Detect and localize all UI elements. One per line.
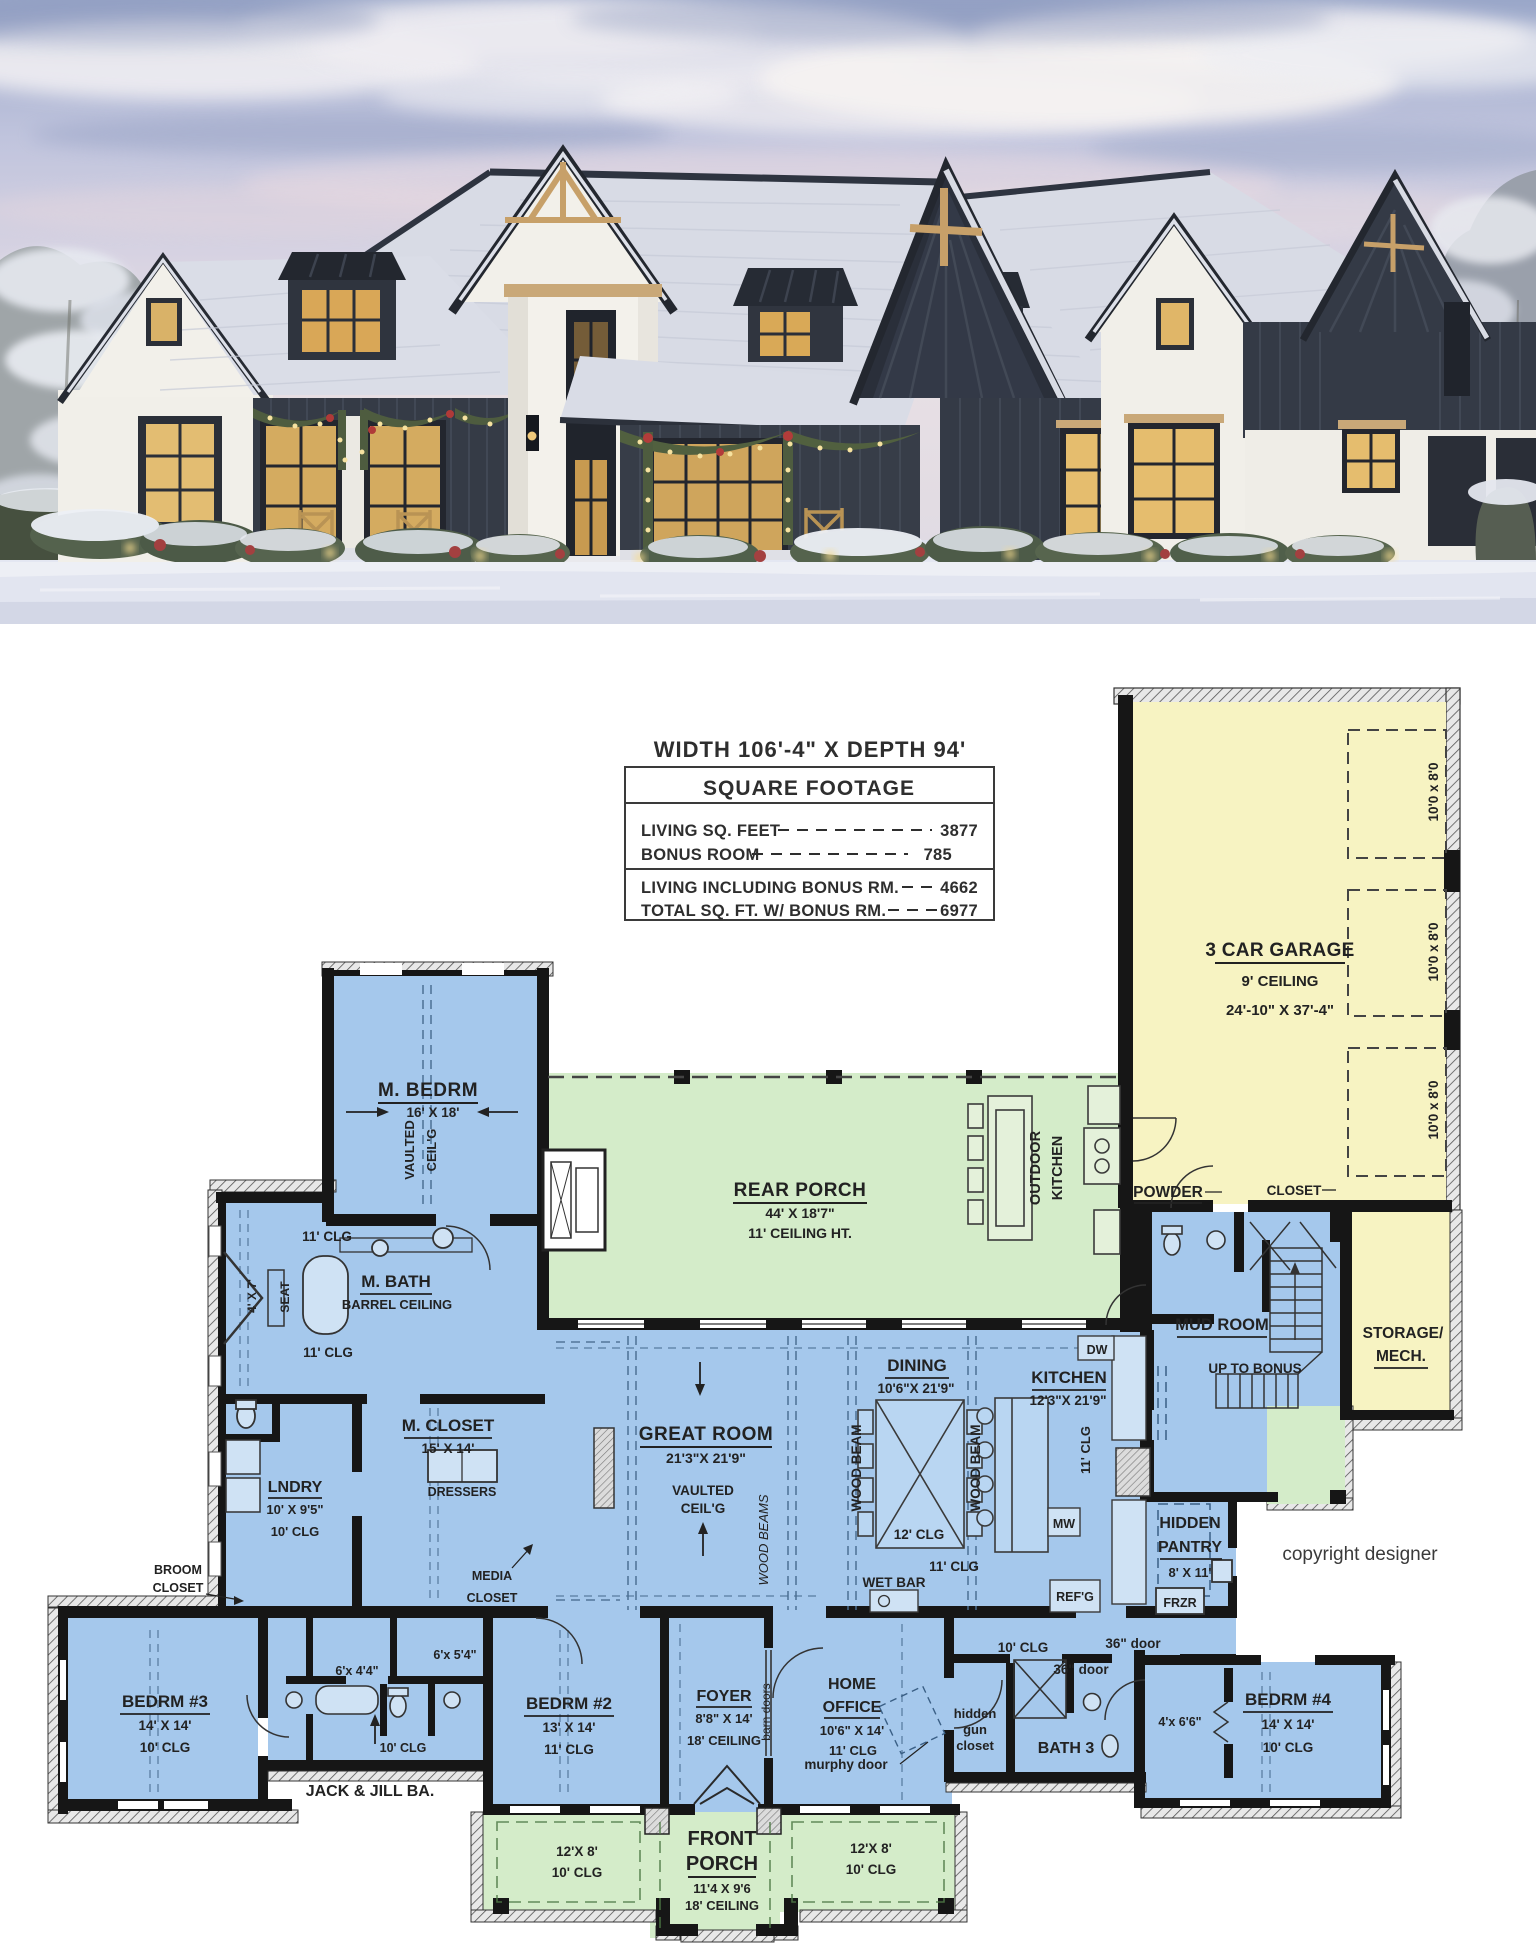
svg-text:8'8" X 14': 8'8" X 14'	[695, 1711, 752, 1726]
svg-text:FRZR: FRZR	[1163, 1596, 1196, 1610]
svg-text:11' CLG: 11' CLG	[929, 1559, 979, 1574]
svg-text:WOOD BEAMS: WOOD BEAMS	[756, 1494, 771, 1585]
svg-text:6'x 5'4": 6'x 5'4"	[433, 1648, 476, 1662]
svg-text:LIVING SQ. FEET: LIVING SQ. FEET	[641, 822, 780, 840]
svg-text:4' X 7': 4' X 7'	[245, 1279, 259, 1313]
svg-text:UP TO BONUS: UP TO BONUS	[1208, 1361, 1301, 1376]
svg-text:10'6"X 21'9": 10'6"X 21'9"	[877, 1381, 954, 1396]
svg-text:12'3"X 21'9": 12'3"X 21'9"	[1029, 1393, 1106, 1408]
svg-text:BARREL CEILING: BARREL CEILING	[342, 1297, 452, 1312]
svg-text:10'0 x 8'0: 10'0 x 8'0	[1426, 923, 1441, 982]
svg-text:11' CLG: 11' CLG	[1078, 1426, 1093, 1474]
svg-text:hidden: hidden	[954, 1706, 997, 1721]
svg-text:MEDIA: MEDIA	[472, 1569, 512, 1583]
svg-text:4'x 6'6": 4'x 6'6"	[1158, 1715, 1201, 1729]
svg-text:FRONT: FRONT	[688, 1828, 757, 1850]
svg-text:gun: gun	[963, 1722, 987, 1737]
svg-text:copyright designer: copyright designer	[1282, 1544, 1438, 1565]
svg-text:10'0 x 8'0: 10'0 x 8'0	[1426, 1081, 1441, 1140]
svg-text:14' X 14': 14' X 14'	[1262, 1717, 1315, 1732]
svg-text:DRESSERS: DRESSERS	[428, 1485, 497, 1499]
svg-text:MUD ROOM: MUD ROOM	[1175, 1316, 1269, 1334]
svg-text:36" door: 36" door	[1105, 1636, 1161, 1651]
svg-text:24'-10" X 37'-4": 24'-10" X 37'-4"	[1226, 1002, 1334, 1019]
svg-text:TOTAL SQ. FT. W/ BONUS RM.: TOTAL SQ. FT. W/ BONUS RM.	[641, 902, 886, 920]
svg-text:10' CLG: 10' CLG	[552, 1865, 602, 1880]
svg-text:12' CLG: 12' CLG	[894, 1527, 944, 1542]
svg-text:BEDRM #2: BEDRM #2	[526, 1694, 612, 1713]
svg-text:POWDER: POWDER	[1133, 1184, 1203, 1201]
svg-text:12'X 8': 12'X 8'	[850, 1841, 892, 1856]
svg-text:CEIL'G: CEIL'G	[681, 1501, 725, 1516]
svg-text:WIDTH 106'-4" X DEPTH 94': WIDTH 106'-4" X DEPTH 94'	[654, 737, 966, 762]
svg-text:SQUARE FOOTAGE: SQUARE FOOTAGE	[703, 777, 915, 800]
svg-text:M. CLOSET: M. CLOSET	[402, 1416, 495, 1435]
svg-text:9' CEILING: 9' CEILING	[1242, 973, 1319, 990]
svg-text:CLOSET: CLOSET	[467, 1591, 518, 1605]
svg-text:13' X 14': 13' X 14'	[543, 1720, 596, 1735]
svg-text:HOME: HOME	[828, 1676, 876, 1693]
svg-text:MECH.: MECH.	[1376, 1348, 1426, 1365]
svg-text:11'4 X 9'6: 11'4 X 9'6	[693, 1881, 751, 1896]
svg-text:11' CLG: 11' CLG	[544, 1742, 594, 1757]
svg-text:10'6" X 14': 10'6" X 14'	[820, 1723, 884, 1738]
svg-text:WOOD BEAM: WOOD BEAM	[968, 1425, 983, 1512]
svg-text:KITCHEN: KITCHEN	[1031, 1368, 1107, 1387]
svg-text:36" door: 36" door	[1053, 1662, 1109, 1677]
svg-text:21'3"X 21'9": 21'3"X 21'9"	[666, 1450, 746, 1466]
svg-text:MW: MW	[1053, 1517, 1075, 1531]
svg-text:8' X 11': 8' X 11'	[1168, 1565, 1211, 1580]
svg-text:6'x 4'4": 6'x 4'4"	[335, 1664, 378, 1678]
svg-text:OUTDOOR: OUTDOOR	[1028, 1130, 1044, 1205]
svg-text:11' CEILING HT.: 11' CEILING HT.	[748, 1225, 852, 1241]
svg-text:PANTRY: PANTRY	[1158, 1539, 1222, 1556]
svg-text:3 CAR GARAGE: 3 CAR GARAGE	[1205, 940, 1354, 961]
svg-text:GREAT ROOM: GREAT ROOM	[639, 1424, 773, 1445]
svg-text:VAULTED: VAULTED	[672, 1483, 734, 1498]
svg-text:WET BAR: WET BAR	[863, 1575, 926, 1590]
svg-text:LIVING INCLUDING BONUS RM.: LIVING INCLUDING BONUS RM.	[641, 879, 899, 897]
svg-text:11' CLG: 11' CLG	[303, 1345, 353, 1360]
svg-text:15' X 14': 15' X 14'	[422, 1441, 475, 1456]
svg-text:4662: 4662	[940, 879, 978, 897]
svg-text:DINING: DINING	[887, 1356, 947, 1375]
svg-text:CLOSET: CLOSET	[1267, 1183, 1323, 1198]
svg-text:14' X 14': 14' X 14'	[139, 1718, 192, 1733]
svg-text:44' X 18'7": 44' X 18'7"	[765, 1205, 834, 1221]
svg-text:18' CEILING: 18' CEILING	[685, 1898, 759, 1913]
svg-text:10' CLG: 10' CLG	[998, 1640, 1048, 1655]
svg-text:JACK & JILL BA.: JACK & JILL BA.	[306, 1783, 435, 1800]
svg-text:LNDRY: LNDRY	[268, 1479, 323, 1496]
svg-text:16' X 18': 16' X 18'	[407, 1105, 460, 1120]
svg-text:closet: closet	[956, 1738, 994, 1753]
svg-text:WOOD BEAM: WOOD BEAM	[849, 1425, 864, 1512]
svg-text:10' X 9'5": 10' X 9'5"	[266, 1502, 323, 1517]
svg-text:785: 785	[924, 846, 952, 864]
svg-text:PORCH: PORCH	[686, 1853, 758, 1875]
svg-text:BROOM: BROOM	[154, 1563, 202, 1577]
svg-text:BEDRM #4: BEDRM #4	[1245, 1690, 1332, 1709]
svg-text:CLOSET: CLOSET	[153, 1581, 204, 1595]
svg-text:M. BEDRM: M. BEDRM	[378, 1080, 478, 1101]
svg-text:STORAGE/: STORAGE/	[1363, 1325, 1444, 1342]
svg-text:BONUS ROOM: BONUS ROOM	[641, 846, 760, 864]
svg-text:BEDRM #3: BEDRM #3	[122, 1692, 208, 1711]
svg-text:11' CLG: 11' CLG	[302, 1229, 352, 1244]
svg-text:BATH 3: BATH 3	[1038, 1740, 1095, 1757]
svg-text:10'0 x 8'0: 10'0 x 8'0	[1426, 763, 1441, 822]
svg-text:10' CLG: 10' CLG	[380, 1741, 427, 1755]
svg-text:10' CLG: 10' CLG	[140, 1740, 190, 1755]
svg-text:10' CLG: 10' CLG	[271, 1524, 320, 1539]
svg-text:SEAT: SEAT	[278, 1281, 292, 1313]
svg-text:10' CLG: 10' CLG	[846, 1862, 896, 1877]
svg-text:murphy door: murphy door	[804, 1757, 888, 1772]
svg-text:6977: 6977	[940, 902, 978, 920]
svg-text:REAR PORCH: REAR PORCH	[734, 1180, 867, 1201]
svg-text:KITCHEN: KITCHEN	[1050, 1136, 1066, 1200]
svg-text:12'X 8': 12'X 8'	[556, 1844, 598, 1859]
svg-text:11' CLG: 11' CLG	[829, 1743, 877, 1758]
svg-text:HIDDEN: HIDDEN	[1159, 1515, 1220, 1532]
svg-text:OFFICE: OFFICE	[823, 1699, 882, 1716]
svg-text:10' CLG: 10' CLG	[1263, 1740, 1313, 1755]
svg-text:3877: 3877	[940, 822, 978, 840]
svg-text:barn doors: barn doors	[759, 1683, 773, 1740]
svg-text:VAULTED: VAULTED	[402, 1120, 417, 1179]
svg-text:M. BATH: M. BATH	[361, 1272, 431, 1291]
svg-text:DW: DW	[1087, 1343, 1108, 1357]
svg-text:CEIL'G: CEIL'G	[424, 1129, 439, 1172]
svg-text:18' CEILING: 18' CEILING	[687, 1733, 761, 1748]
svg-text:REF'G: REF'G	[1056, 1590, 1094, 1604]
svg-text:FOYER: FOYER	[696, 1688, 752, 1705]
